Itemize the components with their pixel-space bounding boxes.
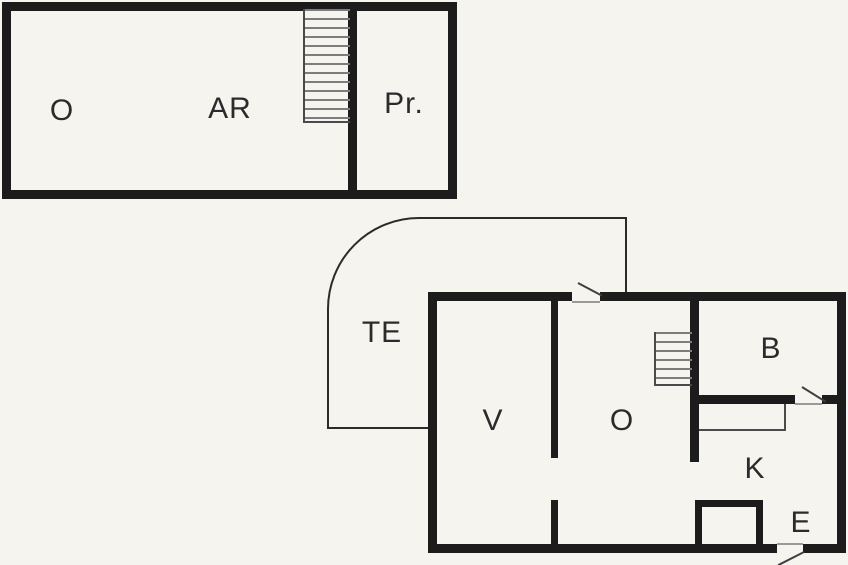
room-label-k: K	[744, 452, 765, 486]
room-label-te: TE	[362, 316, 402, 350]
room-label-b: B	[760, 332, 781, 366]
closet-wall-right	[756, 500, 763, 546]
room-label-e: E	[790, 506, 811, 540]
closet-wall-left	[695, 500, 702, 546]
room-label-ar: AR	[208, 92, 252, 126]
staircase-ground	[654, 332, 692, 386]
staircase-upper	[303, 9, 350, 123]
floor-plan-canvas: O AR Pr. TE V O B K E	[0, 0, 848, 565]
kitchen-counter-right	[784, 404, 786, 431]
kitchen-counter-bottom	[699, 429, 786, 431]
room-label-o-upper: O	[50, 94, 74, 128]
closet-wall-top	[695, 500, 763, 507]
room-label-pr: Pr.	[384, 87, 424, 121]
wall-v-o-lower	[551, 500, 558, 546]
room-label-o-ground: O	[610, 404, 634, 438]
wall-v-o-upper	[551, 300, 558, 458]
room-label-v: V	[482, 404, 503, 438]
wall-b-k	[699, 395, 795, 404]
